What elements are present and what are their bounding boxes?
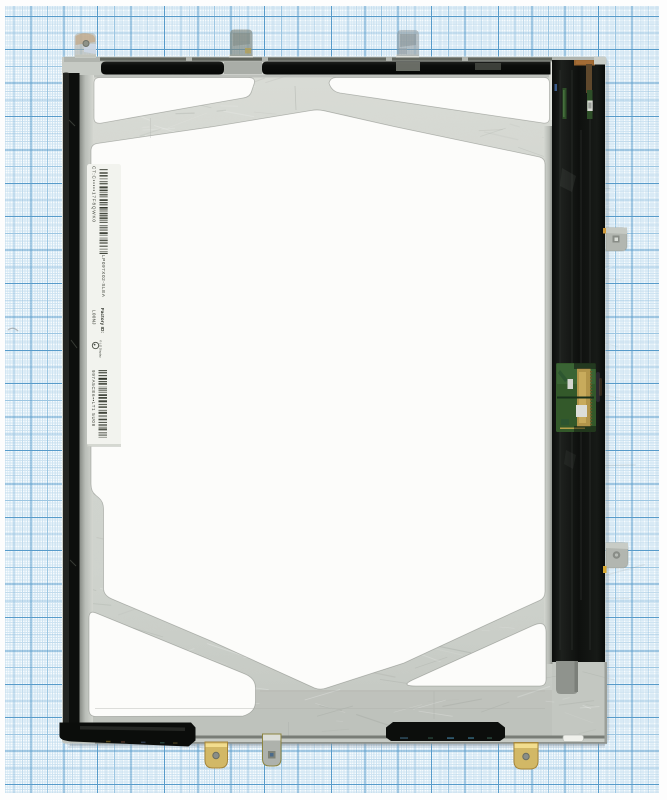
svg-text:997A5CE6▪▪LT1 5U08: 997A5CE6▪▪LT1 5U08 [91,370,96,427]
svg-text:L00NJ: L00NJ [92,310,97,325]
svg-text:LP097X02-SLEA: LP097X02-SLEA [101,255,106,298]
svg-text:CT:C▪▪▪▪▪17F8QWK0: CT:C▪▪▪▪▪17F8QWK0 [92,166,97,223]
svg-text:Factory ID:: Factory ID: [100,308,105,333]
svg-text:® LG Display: ® LG Display [99,340,103,358]
